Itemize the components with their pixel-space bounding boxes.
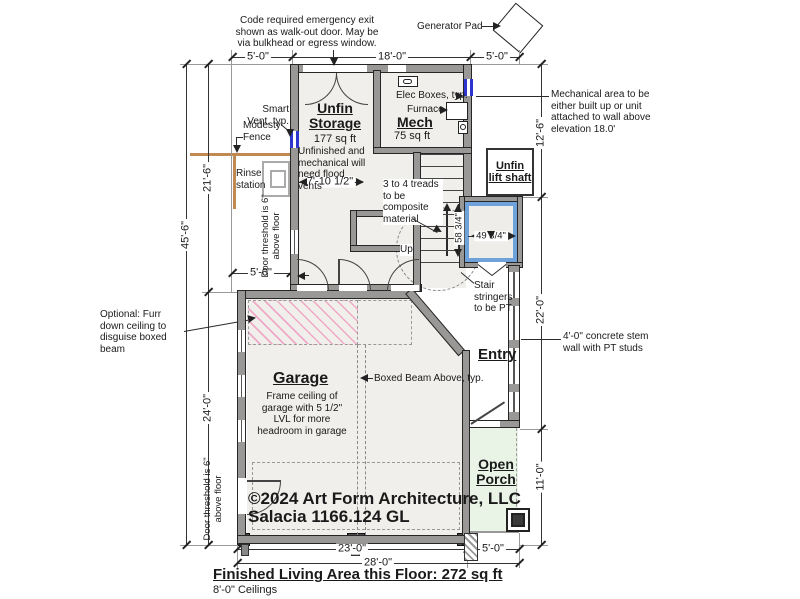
- dim-line-left-overall: [186, 64, 187, 545]
- threshold-note-garage: Door threshold is 6" above floor: [203, 457, 225, 541]
- living-area-text: Finished Living Area this Floor: 272 sq …: [213, 566, 502, 583]
- stem-wall-note: 4'-0" concrete stem wall with PT studs: [563, 331, 661, 354]
- room-label-entry: Entry: [478, 347, 516, 364]
- dim-arrow: [508, 232, 520, 240]
- hatch-extension-dashed: [358, 300, 412, 345]
- dim-arrow: [454, 249, 462, 261]
- room-label-mech: Mech: [397, 115, 433, 130]
- dim-label: 58 3/4": [454, 211, 464, 245]
- dim-label: 5'-0": [480, 544, 506, 555]
- mech-area-leader: [476, 96, 549, 97]
- storage-name: Unfin Storage: [309, 100, 361, 131]
- modesty-fence-leader: [236, 137, 243, 138]
- ext-line: [231, 50, 232, 292]
- dim-label: 5'-0": [484, 52, 510, 63]
- lift-label-arrow: [487, 231, 495, 243]
- lift-label-box: Unfin lift shaft: [486, 148, 534, 196]
- dim-label: 23'-0": [336, 544, 368, 555]
- elec-boxes-arrow: [456, 92, 468, 100]
- emergency-exit-note: Code required emergency exit shown as wa…: [228, 15, 386, 50]
- garage-window-2: [238, 375, 245, 397]
- garage-window-3: [238, 420, 245, 442]
- copyright-text: ©2024 Art Form Architecture, LLC: [248, 489, 521, 509]
- modesty-fence-note: Modesty Fence: [243, 120, 289, 143]
- storage-door-gap-2: [339, 285, 367, 291]
- water-heater-circle: [460, 124, 466, 130]
- generator-pad-arrow: [493, 22, 505, 30]
- porch-column-inner: [511, 513, 525, 527]
- mech-top-opening: [388, 65, 406, 72]
- dim-label: 45'-6": [181, 219, 192, 251]
- storage-door-gap-1: [297, 285, 327, 291]
- ext-line: [472, 64, 548, 65]
- smart-vent-arrow: [286, 129, 294, 141]
- garage-left-door-gap: [238, 478, 246, 514]
- threshold-arrow-storage: [293, 272, 305, 280]
- rinse-station-note: Rinse station: [236, 168, 276, 191]
- room-label-lift: Unfin lift shaft: [488, 160, 532, 184]
- mech-area-note: Mechanical area to be either built up or…: [551, 89, 665, 135]
- dim-label: 21'-6": [203, 162, 214, 194]
- garage-ceiling-note: Frame ceiling of garage with 5 1/2" LVL …: [256, 391, 348, 437]
- furr-down-note: Optional: Furr down ceiling to disguise …: [100, 309, 186, 355]
- emergency-exit-arrow: [330, 58, 338, 70]
- modesty-fence-arrow: [233, 145, 241, 157]
- dim-arrow: [454, 200, 462, 212]
- boxed-beam-arrow: [356, 374, 368, 382]
- floor-plan: 5'-0" 18'-0" 5'-0" 45'-6" 21'-6" 24'-0" …: [0, 0, 800, 599]
- stair-stringers-note: Stair stringers to be PT: [474, 280, 522, 315]
- generator-pad-note: Generator Pad: [417, 21, 483, 33]
- dim-label: 24'-0": [203, 392, 214, 424]
- dim-label: 12'-6": [536, 117, 547, 149]
- garage-top-wall: [237, 290, 415, 299]
- storage-left-window: [291, 230, 298, 254]
- furr-down-hatch: [248, 300, 358, 345]
- up-arrow-head: [443, 199, 451, 211]
- mech-bottom-wall: [373, 147, 472, 154]
- stem-wall-leader: [521, 339, 561, 340]
- elec-box-symbol-inner: [403, 79, 412, 84]
- furnace-arrow: [440, 106, 452, 114]
- room-label-storage: Unfin Storage: [303, 101, 367, 132]
- mech-area-sqft: 75 sq ft: [394, 130, 430, 143]
- furnace-note: Furnace: [407, 104, 444, 116]
- plan-id-text: Salacia 1166.124 GL: [248, 507, 410, 527]
- ext-line: [180, 64, 290, 65]
- hatched-pier: [464, 533, 478, 561]
- room-label-porch: Open Porch: [468, 457, 524, 488]
- porch-name: Open Porch: [476, 456, 516, 487]
- dim-arrow: [295, 178, 307, 186]
- dim-label: 18'-0": [376, 52, 408, 63]
- threshold-note-storage: Door threshold is 6" above floor: [261, 194, 283, 278]
- storage-mech-divider: [373, 70, 381, 154]
- hall-door-gap: [391, 285, 419, 291]
- dim-label: 11'-0": [536, 461, 547, 492]
- footing-left: [241, 544, 249, 556]
- ext-line: [520, 545, 548, 546]
- up-label: Up: [400, 244, 413, 256]
- room-label-garage: Garage: [273, 370, 328, 388]
- dim-label: 5'-0": [245, 52, 271, 63]
- boxed-beam-note: Boxed Beam Above, typ.: [374, 373, 484, 385]
- ext-line: [520, 429, 548, 430]
- ext-line: [523, 197, 548, 198]
- dim-label: 22'-0": [536, 294, 547, 326]
- entry-window-4: [509, 392, 519, 412]
- dim-arrow: [356, 178, 368, 186]
- ceilings-text: 8'-0" Ceilings: [213, 584, 277, 596]
- garage-window-1: [238, 330, 245, 352]
- storage-area: 177 sq ft: [303, 133, 367, 146]
